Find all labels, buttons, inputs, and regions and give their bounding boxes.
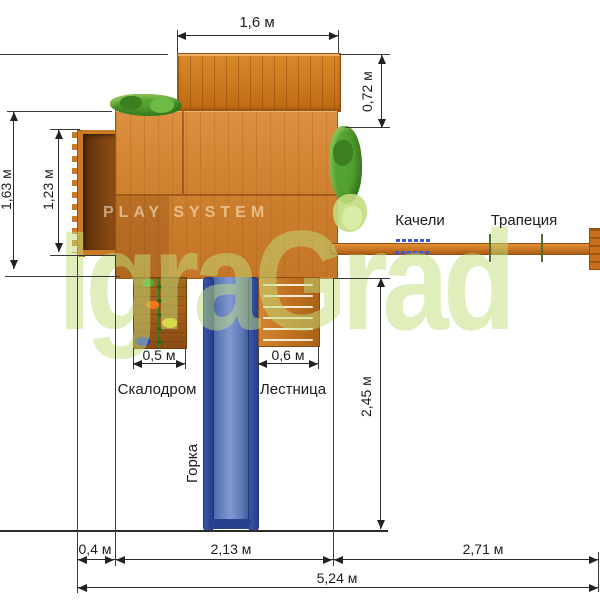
dim-arrow — [177, 32, 186, 40]
dim-slide-length: 2,45 м — [358, 365, 374, 429]
dim-total-width: 5,24 м — [292, 570, 382, 586]
dim-arrow — [589, 584, 598, 592]
dim-line-roof-width — [177, 35, 338, 36]
dim-arrow — [334, 556, 343, 564]
playground-plan-diagram: PLAY SYSTEM IgraGrad 1,6 м 0,72 м 1,63 м… — [0, 0, 600, 600]
watermark-igragrad: IgraGrad — [58, 210, 510, 352]
dim-arrow — [55, 243, 63, 252]
dim-arrow — [10, 260, 18, 269]
deck-seam — [182, 111, 184, 194]
roof-panel — [177, 53, 341, 112]
dim-arrow — [378, 119, 386, 128]
dim-arrow — [105, 556, 114, 564]
dim-arrow — [78, 556, 87, 564]
ext-line — [7, 111, 112, 112]
dim-ladder-width: 0,6 м — [253, 347, 323, 363]
dim-roof-width: 1,6 м — [212, 14, 302, 31]
dim-arrow — [10, 112, 18, 121]
dim-arrow — [378, 55, 386, 64]
ext-line — [50, 255, 115, 256]
dim-total-depth: 1,63 м — [0, 158, 14, 222]
label-climbing-wall: Скалодром — [110, 381, 204, 398]
label-trapeze: Трапеция — [482, 212, 566, 229]
dim-line-balcony-depth — [58, 130, 59, 252]
label-swing: Качели — [388, 212, 452, 229]
dim-platform-width: 2,13 м — [186, 541, 276, 557]
dim-arrow — [116, 556, 125, 564]
trapeze-bar-right — [541, 234, 543, 262]
dim-arrow — [377, 520, 385, 529]
dim-balcony-depth: 1,23 м — [40, 158, 56, 222]
dim-line-slide-length — [380, 278, 381, 529]
label-slide: Горка — [184, 436, 201, 490]
dim-roof-depth: 0,72 м — [359, 60, 375, 124]
ext-line — [333, 279, 334, 566]
dim-line-roof-depth — [381, 55, 382, 128]
ext-line — [338, 30, 339, 53]
slide-bottom-cap — [209, 519, 251, 529]
dim-arrow — [55, 130, 63, 139]
ext-line — [598, 552, 599, 592]
dim-wall-width: 0,5 м — [124, 347, 194, 363]
ext-line — [0, 54, 168, 55]
dim-line-platform-width — [115, 559, 333, 560]
dim-balcony-offset: 0,4 м — [70, 541, 120, 557]
a-frame-end-post — [589, 228, 600, 270]
ext-line — [5, 276, 120, 277]
label-ladder: Лестница — [251, 381, 335, 398]
dim-arrow — [329, 32, 338, 40]
dim-arrow — [323, 556, 332, 564]
ground-line — [0, 530, 388, 532]
ext-line — [115, 255, 116, 566]
dim-line-swing-section — [333, 559, 598, 560]
dim-swing-section-width: 2,71 м — [438, 541, 528, 557]
dim-arrow — [589, 556, 598, 564]
dim-arrow — [78, 584, 87, 592]
dim-arrow — [377, 278, 385, 287]
dim-line-total-width — [77, 587, 598, 588]
